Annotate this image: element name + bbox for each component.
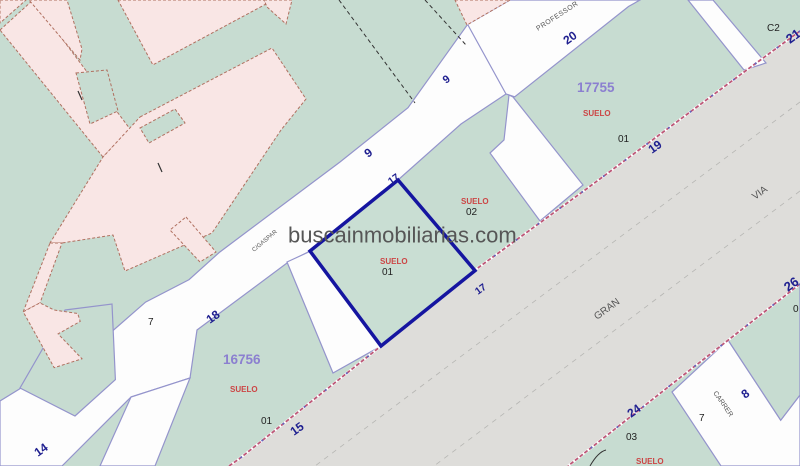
svg-text:SUELO: SUELO bbox=[636, 457, 664, 466]
svg-text:7: 7 bbox=[148, 317, 154, 328]
svg-text:C2: C2 bbox=[767, 23, 780, 34]
svg-text:7: 7 bbox=[699, 413, 705, 424]
svg-text:16756: 16756 bbox=[223, 352, 261, 367]
svg-text:SUELO: SUELO bbox=[583, 109, 611, 118]
svg-text:01: 01 bbox=[382, 267, 394, 278]
svg-text:01: 01 bbox=[618, 134, 630, 145]
svg-text:SUELO: SUELO bbox=[380, 257, 408, 266]
svg-text:SUELO: SUELO bbox=[230, 385, 258, 394]
svg-text:02: 02 bbox=[466, 207, 478, 218]
svg-text:SUELO: SUELO bbox=[461, 197, 489, 206]
svg-text:17755: 17755 bbox=[577, 80, 615, 95]
svg-text:buscainmobiliarias.com: buscainmobiliarias.com bbox=[288, 223, 517, 248]
svg-text:01: 01 bbox=[261, 416, 273, 427]
svg-text:03: 03 bbox=[626, 432, 638, 443]
svg-text:0: 0 bbox=[793, 304, 799, 315]
